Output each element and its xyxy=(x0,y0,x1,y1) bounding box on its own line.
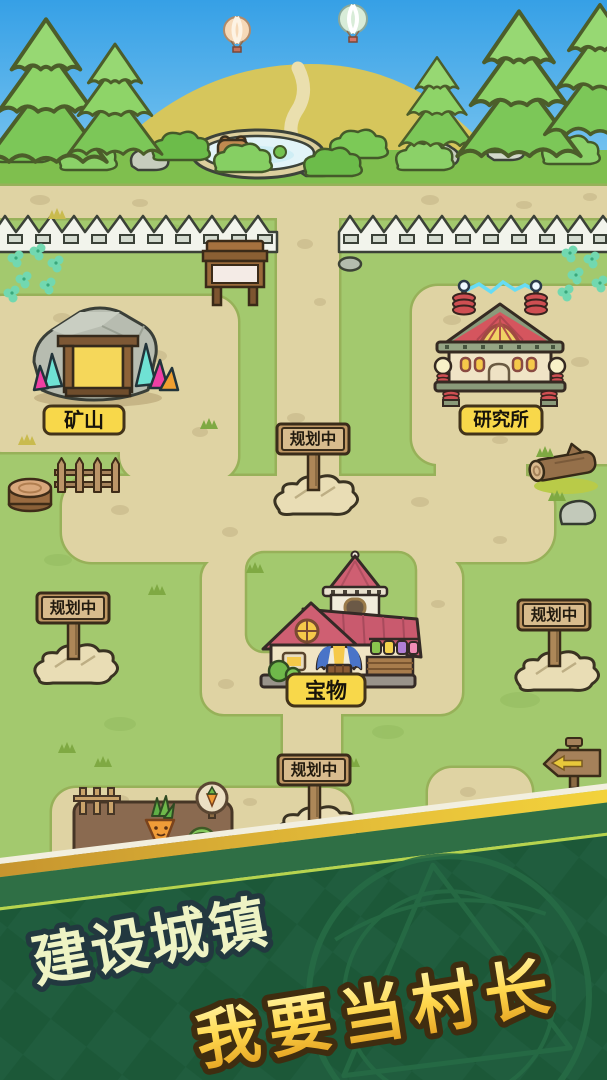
treasure-label-plate: 宝物 xyxy=(287,674,365,706)
orb-lamp-right xyxy=(549,358,565,374)
treasure-label: 宝物 xyxy=(305,679,347,703)
hanging-goods xyxy=(384,641,394,654)
orb-lamp-left xyxy=(435,358,451,374)
planning-sign-label: 规划中 xyxy=(290,429,337,448)
hanging-goods xyxy=(371,641,381,654)
door xyxy=(489,364,509,382)
planning-sign-label: 规划中 xyxy=(531,605,578,624)
planning-sign-label: 规划中 xyxy=(50,598,97,617)
planning-sign-label: 规划中 xyxy=(291,760,338,779)
base-platform xyxy=(435,382,565,391)
game-screen: 矿山 xyxy=(0,0,607,1080)
forest-backdrop xyxy=(0,0,607,206)
rock xyxy=(560,501,595,524)
stall xyxy=(367,657,413,676)
research-label-plate: 研究所 xyxy=(460,406,542,434)
town-map: 矿山 xyxy=(0,0,607,1080)
research-label: 研究所 xyxy=(473,409,529,430)
mine-entrance xyxy=(73,346,123,390)
mine-label-plate: 矿山 xyxy=(44,406,124,434)
hanging-goods xyxy=(397,641,407,654)
hanging-goods xyxy=(409,642,418,654)
mine-label: 矿山 xyxy=(64,408,104,432)
tree-stump xyxy=(9,479,51,511)
pebble xyxy=(339,258,361,271)
